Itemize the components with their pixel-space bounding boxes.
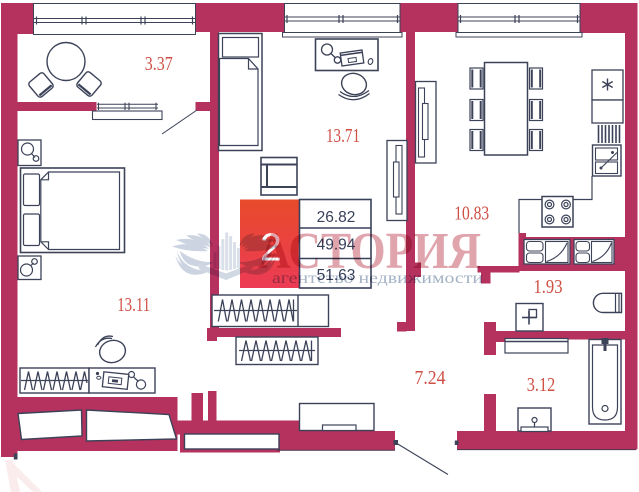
svg-text:1.93: 1.93 — [534, 277, 563, 298]
svg-text:3.37: 3.37 — [145, 54, 173, 75]
svg-text:3.12: 3.12 — [527, 375, 556, 396]
svg-text:13.11: 13.11 — [117, 295, 150, 316]
svg-text:7.24: 7.24 — [415, 368, 446, 389]
svg-text:13.71: 13.71 — [326, 126, 360, 147]
svg-text:10.83: 10.83 — [454, 204, 489, 225]
svg-text:агентство недвижимости: агентство недвижимости — [272, 270, 484, 287]
